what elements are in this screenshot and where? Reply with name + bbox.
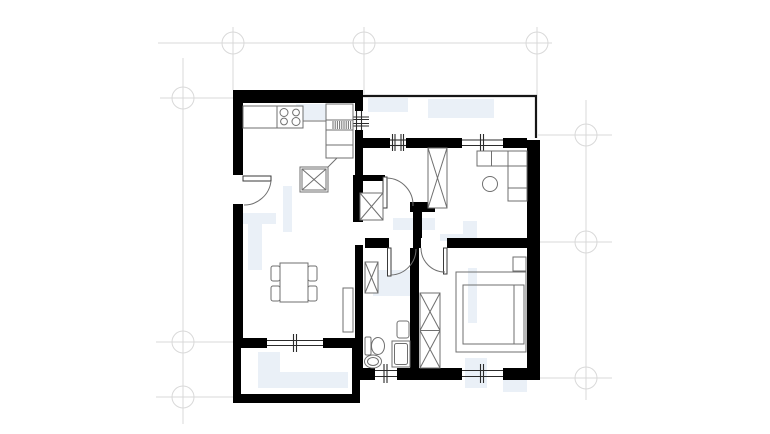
grid-marker: [168, 327, 198, 357]
dining-chair: [271, 266, 280, 281]
shower: [392, 341, 410, 367]
grid-marker: [349, 28, 379, 58]
dining-table: [280, 263, 308, 302]
double-bed: [456, 272, 526, 352]
bedroom-top-door: [383, 177, 413, 208]
window: [390, 134, 406, 151]
dining-chair: [308, 266, 317, 281]
sideboard: [343, 288, 353, 332]
tall-kitchen-unit: [326, 104, 353, 167]
toilet-icon: [365, 337, 385, 355]
floor-plan-drawing: [0, 0, 770, 434]
grid-marker: [571, 363, 601, 393]
grid-marker: [571, 120, 601, 150]
grid-marker: [168, 83, 198, 113]
kitchen-island: [300, 167, 328, 192]
dining-furniture: [271, 263, 353, 332]
grid-marker: [522, 28, 552, 58]
dining-chair: [271, 286, 280, 301]
round-table: [483, 177, 498, 192]
tall-cabinet: [365, 262, 378, 293]
wardrobe-icon: [428, 148, 447, 208]
stove-icon: [277, 106, 303, 128]
entrance-door: [243, 176, 271, 205]
hallway-shaft: [360, 193, 383, 220]
dining-chair: [308, 286, 317, 301]
corner-sofa: [477, 151, 527, 201]
nightstand: [513, 257, 526, 271]
wash-oval-icon: [365, 355, 382, 368]
window: [267, 334, 323, 352]
grid-marker: [571, 227, 601, 257]
double-wardrobe-icon: [420, 293, 440, 368]
kitchen-counter: [243, 106, 277, 128]
bedroom-top-furniture: [428, 148, 527, 208]
drainer-hatch: [333, 121, 351, 129]
grid-marker: [168, 382, 198, 412]
bedroom-bottom-door: [421, 248, 447, 274]
window: [462, 134, 503, 151]
floor-plan-page: [0, 0, 770, 434]
grid-marker: [218, 28, 248, 58]
washbasin: [397, 321, 409, 338]
